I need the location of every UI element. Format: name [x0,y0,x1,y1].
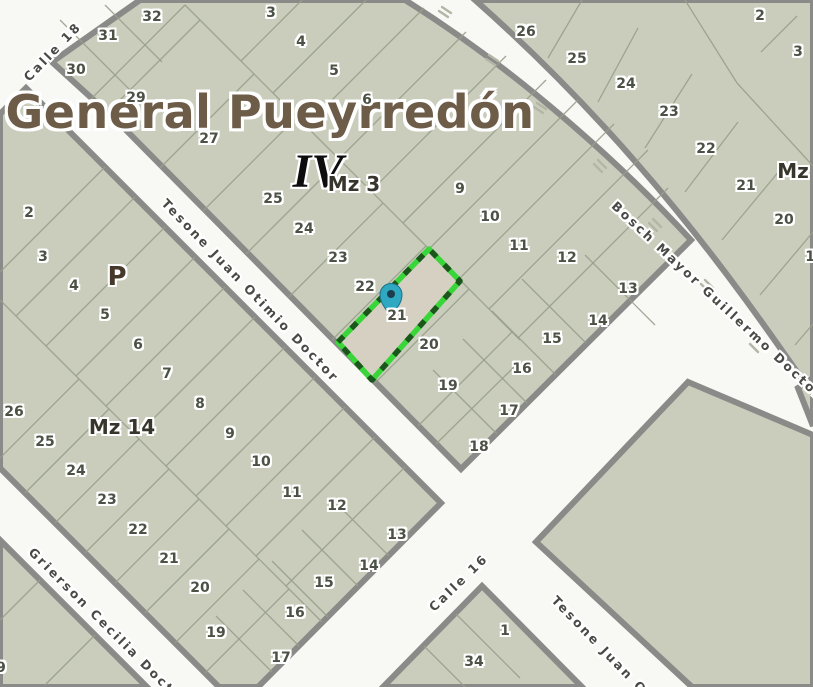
map-geometry [0,0,813,687]
block-southeast-large[interactable] [536,382,813,687]
cadastral-map[interactable]: General PueyrredónIVMz 3PMz 14MzCalle 18… [0,0,813,687]
pin-center-dot [387,290,395,298]
block-south[interactable] [383,586,582,687]
block-east-sliver[interactable] [798,378,813,426]
